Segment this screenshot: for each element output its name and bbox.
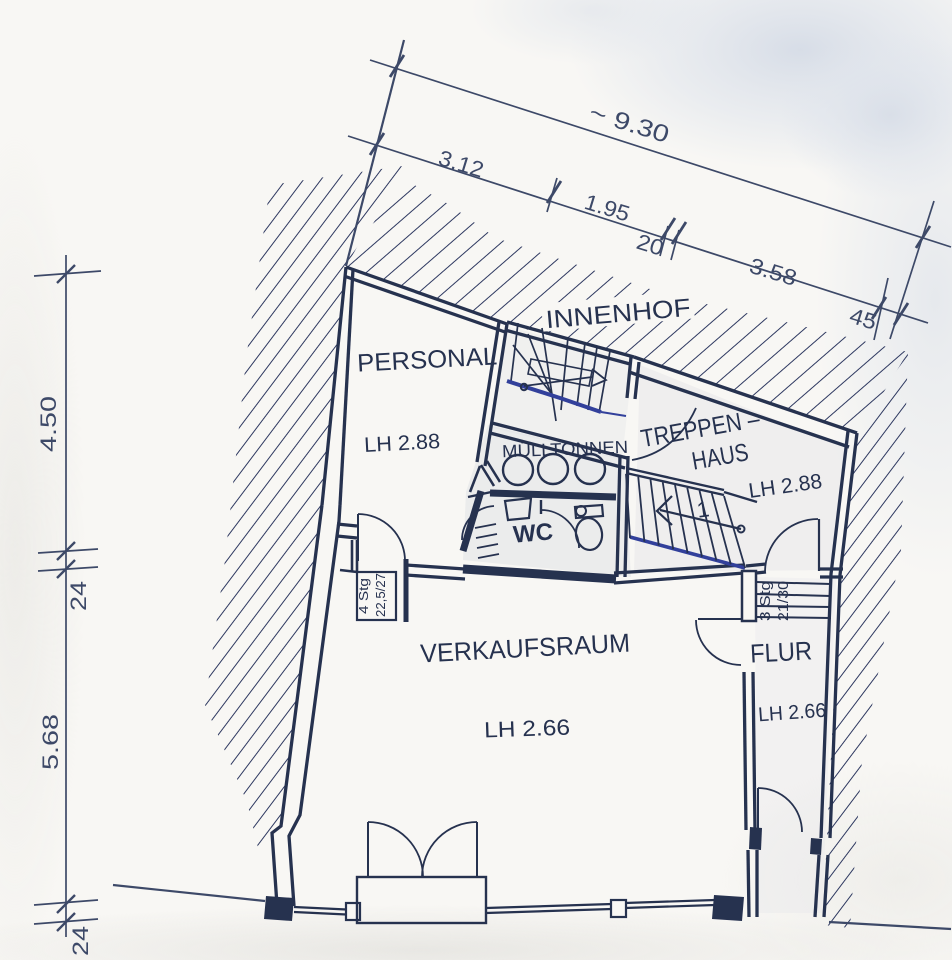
svg-text:5.68: 5.68 [38,714,63,770]
svg-text:4 Stg: 4 Stg [356,578,371,614]
svg-text:FLUR: FLUR [749,635,812,668]
svg-text:WC: WC [512,518,554,548]
svg-text:3 Stg: 3 Stg [757,581,774,621]
svg-text:21/30: 21/30 [775,581,792,621]
svg-text:24: 24 [68,926,93,956]
svg-text:LH 2.66: LH 2.66 [484,715,571,743]
svg-text:22,5/27: 22,5/27 [373,573,388,617]
svg-text:24: 24 [66,581,91,611]
svg-text:LH 2.88: LH 2.88 [364,430,441,457]
svg-text:4.50: 4.50 [36,396,61,452]
